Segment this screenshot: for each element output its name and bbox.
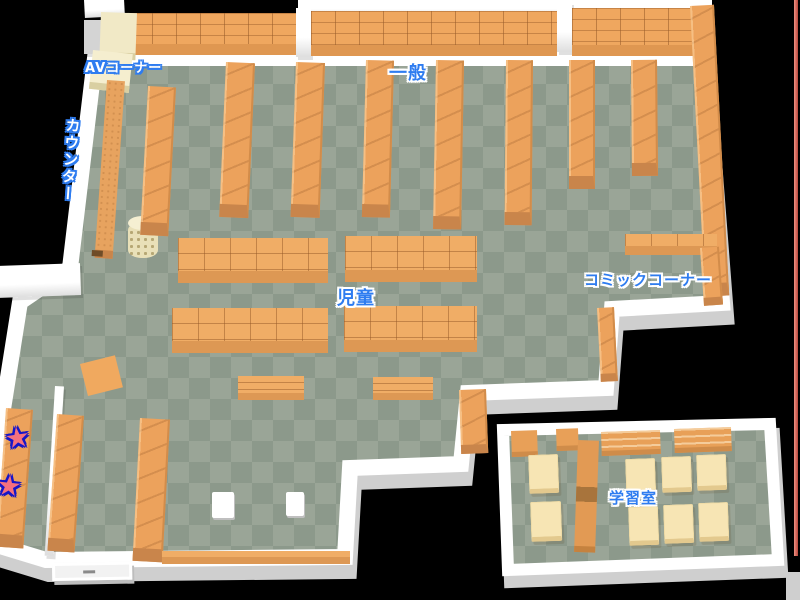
study-desk — [530, 501, 562, 542]
study-desk — [628, 506, 659, 546]
study-desk — [696, 454, 727, 491]
star-marker-1: ★ — [3, 423, 32, 454]
wall-shelf — [459, 389, 488, 454]
study-shelf — [674, 427, 732, 453]
white-box — [212, 492, 234, 518]
bookshelf-vertical — [569, 60, 595, 189]
children-shelf — [344, 306, 477, 352]
children-shelf — [172, 308, 328, 353]
wall-pillar-2 — [557, 2, 572, 52]
bookshelf-vertical — [291, 62, 325, 218]
bookshelf-vertical — [631, 60, 658, 176]
study-desk — [661, 456, 692, 493]
study-shelf — [601, 430, 661, 456]
white-box — [286, 492, 304, 516]
children-low-shelf — [238, 376, 304, 400]
label-general: 一般 — [389, 59, 427, 85]
wall-pillar-1 — [296, 8, 311, 57]
bookshelf-vertical — [133, 418, 170, 562]
study-shelf — [511, 430, 538, 457]
av-corner-pillar — [84, 20, 101, 54]
comic-corner-shelf — [597, 307, 618, 382]
bookshelf-vertical — [505, 60, 533, 225]
bookshelf-vertical — [140, 86, 176, 236]
children-shelf — [178, 238, 328, 283]
reading-mat — [80, 355, 123, 396]
left-wall-block — [0, 263, 81, 298]
label-counter: カウンター — [57, 117, 84, 203]
children-low-shelf — [373, 377, 433, 400]
label-study-room: 学習室 — [609, 487, 657, 508]
wall-bookshelf-top-left — [128, 13, 296, 55]
study-divider-shelf — [574, 440, 599, 553]
study-shelf — [556, 428, 579, 451]
wall-bookshelf-top-center — [311, 11, 557, 56]
bookshelf-vertical — [219, 62, 255, 218]
label-comic-corner: コミックコーナー — [584, 269, 712, 290]
label-children: 児童 — [337, 284, 375, 310]
study-desk — [663, 504, 694, 544]
library-floor-map: ★ ★ AVコーナー カウンター 一般 児童 コミックコーナー 学習室 — [0, 0, 800, 600]
service-counter — [95, 80, 125, 259]
corner-shadow — [786, 572, 800, 600]
bookshelf-vertical — [433, 60, 464, 229]
star-marker-2: ★ — [0, 471, 23, 501]
entrance-door — [52, 562, 132, 581]
furniture-layer: ★ ★ AVコーナー カウンター 一般 児童 コミックコーナー 学習室 — [0, 0, 800, 600]
counter-end-item — [92, 250, 103, 257]
children-shelf — [345, 236, 477, 282]
map-edge-line — [794, 0, 798, 556]
study-desk — [528, 454, 559, 494]
bottom-wall-shelf — [162, 551, 350, 564]
label-av-corner: AVコーナー — [85, 57, 162, 76]
wall-bookshelf-top-right — [572, 8, 700, 56]
study-desk — [698, 502, 729, 542]
